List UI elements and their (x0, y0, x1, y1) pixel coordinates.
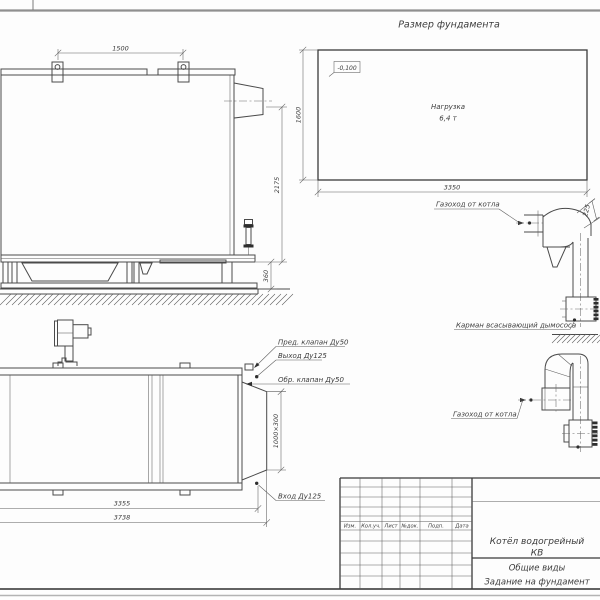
flue-outlet (224, 83, 272, 118)
label-outlet: Выход Ду125 (258, 352, 327, 376)
lifting-lug-right (178, 62, 189, 82)
ground-hatch (0, 294, 293, 305)
flue-duct-label: Газоход от котла (436, 201, 500, 209)
label-check-valve: Обр. клапан Ду50 (246, 376, 350, 386)
duct-label-plan: Газоход от котла (451, 398, 533, 419)
col-data: Дата (454, 524, 468, 530)
flue-ground (552, 334, 600, 343)
flue-elevation-detail: Газоход от котла (434, 199, 600, 344)
product-line1: Котёл водогрейный (490, 537, 585, 547)
dim-3350-value: 3350 (444, 184, 461, 192)
dim-1500: 1500 (55, 45, 186, 61)
burner-assembly (55, 320, 92, 366)
assignment: Задание на фундамент (484, 578, 590, 588)
drawing-sheet: 1500 2175 360 Размер фундамента -0,100 (0, 0, 600, 600)
dim-360-value: 360 (262, 270, 270, 282)
flue-plan-detail: Газоход от котла (451, 354, 598, 452)
dim-3738-value: 3738 (114, 514, 131, 522)
pocket-label: Карман всасывающий дымососа (454, 321, 576, 330)
outlet-text: Выход Ду125 (278, 352, 327, 360)
boiler-drawing: 1500 2175 360 Размер фундамента -0,100 (0, 0, 600, 600)
lifting-lug-left (52, 62, 63, 82)
sheet-border-bottom (0, 589, 600, 596)
ground (0, 289, 293, 305)
load-label: Нагрузка 6,4 т (431, 103, 465, 123)
foundation-title: Размер фундамента (398, 20, 500, 31)
support-frame (1, 255, 257, 288)
dim-3738: 3738 (0, 470, 270, 527)
dim-1500-value: 1500 (112, 45, 129, 53)
flue-plan-label: Газоход от котла (453, 411, 517, 419)
product-name: Котёл водогрейный КВ (490, 537, 585, 559)
col-koluch: Кол.уч. (361, 524, 381, 530)
elbow-duct (518, 354, 588, 452)
col-podp: Подп. (428, 524, 444, 530)
elevation-mark-value: -0,100 (337, 65, 357, 72)
dim-1600: 1600 (295, 47, 319, 183)
sheet-border-top (0, 0, 600, 11)
col-ndok: №док. (401, 524, 419, 530)
valve-tab (245, 364, 253, 370)
col-list: Лист (383, 524, 398, 530)
dim-3355-value: 3355 (114, 500, 131, 508)
side-view: 1500 2175 360 (0, 45, 293, 306)
dim-2175-value: 2175 (273, 177, 281, 194)
label-inlet: Вход Ду125 (259, 485, 326, 501)
load-line2: 6,4 т (439, 115, 457, 123)
load-line1: Нагрузка (431, 103, 465, 111)
check-valve-text: Обр. клапан Ду50 (278, 376, 344, 384)
dim-1000x300-value: 1000×300 (272, 414, 280, 448)
dim-225: 225 (577, 199, 600, 229)
dim-2175: 2175 (256, 104, 287, 265)
product-line2: КВ (531, 549, 544, 559)
pocket-label-text: Карман всасывающий дымососа (456, 322, 576, 330)
col-izm: Изм. (344, 524, 356, 530)
view-type: Общие виды (509, 564, 566, 574)
inlet-text: Вход Ду125 (278, 493, 322, 501)
title-block-headers: Изм. Кол.уч. Лист №док. Подп. Дата (344, 524, 469, 530)
inlet-dot (255, 482, 258, 485)
outlet-dot (255, 375, 258, 378)
elevation-mark-box: -0,100 (329, 62, 360, 77)
exhauster-box (562, 420, 598, 449)
duct-label-side: Газоход от котла (434, 201, 531, 226)
dim-225-value: 225 (581, 204, 592, 218)
title-block: Изм. Кол.уч. Лист №док. Подп. Дата Котёл… (340, 478, 600, 589)
document-type: Общие виды Задание на фундамент (484, 564, 590, 588)
dim-1000x300: 1000×300 (267, 389, 286, 474)
dim-3350: 3350 (315, 180, 590, 197)
transition-duct (242, 375, 267, 485)
boiler-plan-view: Пред. клапан Ду50 Выход Ду125 Обр. клапа… (0, 320, 350, 527)
safety-valve-text: Пред. клапан Ду50 (278, 339, 349, 347)
suction-pocket (560, 297, 600, 322)
dim-360: 360 (259, 259, 277, 292)
dim-1600-value: 1600 (295, 107, 303, 124)
foundation-plan: Размер фундамента -0,100 Нагрузка 6,4 т … (295, 20, 591, 198)
plan-body (0, 363, 253, 495)
boiler-body (1, 69, 235, 255)
drain-fitting (244, 220, 254, 256)
